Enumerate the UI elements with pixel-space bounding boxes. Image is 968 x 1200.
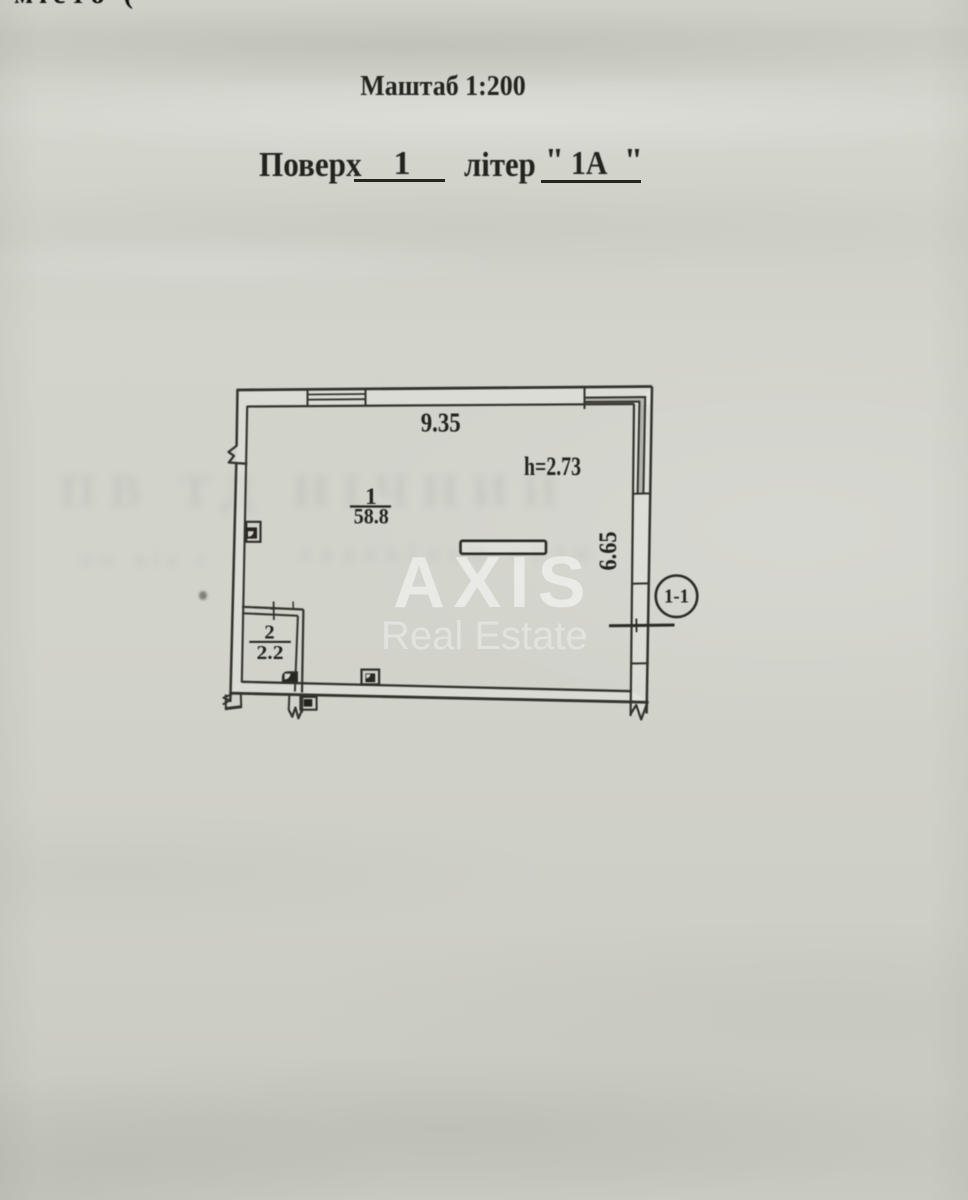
svg-text:9.35: 9.35 xyxy=(421,408,461,438)
svg-text:h=2.73: h=2.73 xyxy=(524,452,581,481)
svg-text:1-1: 1-1 xyxy=(664,586,689,608)
svg-text:2: 2 xyxy=(264,622,274,644)
svg-text:58.8: 58.8 xyxy=(354,504,389,529)
svg-text:2.2: 2.2 xyxy=(257,642,284,664)
svg-text:6.65: 6.65 xyxy=(593,532,622,571)
